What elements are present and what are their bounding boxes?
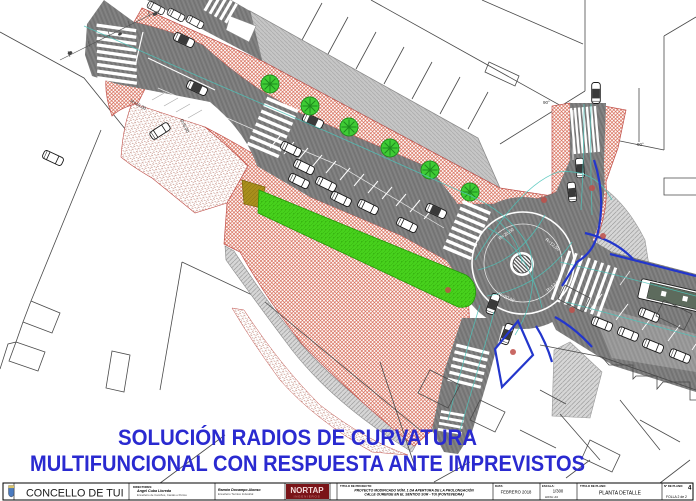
svg-text:90°: 90°	[637, 142, 644, 147]
svg-text:ESCALA:: ESCALA:	[542, 484, 554, 488]
svg-text:INGENIEROS: INGENIEROS	[294, 495, 321, 499]
svg-text:90°: 90°	[543, 100, 550, 105]
svg-text:TITULO DE PROXECTO:: TITULO DE PROXECTO:	[340, 484, 372, 488]
svg-text:Nº DE PLANO:: Nº DE PLANO:	[664, 484, 683, 488]
svg-text:Enxeñeiro de Camiños, Canáis e: Enxeñeiro de Camiños, Canáis e Portos	[137, 493, 187, 497]
svg-text:PLANTA DETALLE: PLANTA DETALLE	[599, 491, 642, 497]
svg-text:SOLUCIÓN RADIOS DE CURVATURA: SOLUCIÓN RADIOS DE CURVATURA	[118, 425, 477, 450]
svg-text:1/300: 1/300	[553, 489, 564, 494]
svg-text:HOXA: A3: HOXA: A3	[545, 495, 558, 499]
svg-text:DATA:: DATA:	[495, 484, 503, 488]
svg-text:MULTIFUNCIONAL CON RESPUESTA A: MULTIFUNCIONAL CON RESPUESTA ANTE IMPREV…	[30, 451, 585, 476]
svg-text:FOLLA 2 de 2: FOLLA 2 de 2	[666, 495, 687, 499]
svg-text:Enxeñeiro Técnico Industrial: Enxeñeiro Técnico Industrial	[218, 492, 254, 496]
svg-text:FEBRERO 2018: FEBRERO 2018	[501, 490, 532, 495]
svg-text:CALLE OURENSE EN EL SENTIDO SU: CALLE OURENSE EN EL SENTIDO SUR - TUI (P…	[364, 493, 464, 497]
svg-text:CONCELLO DE TUI: CONCELLO DE TUI	[26, 488, 124, 500]
svg-text:TITULO DE PLANO:: TITULO DE PLANO:	[580, 484, 606, 488]
